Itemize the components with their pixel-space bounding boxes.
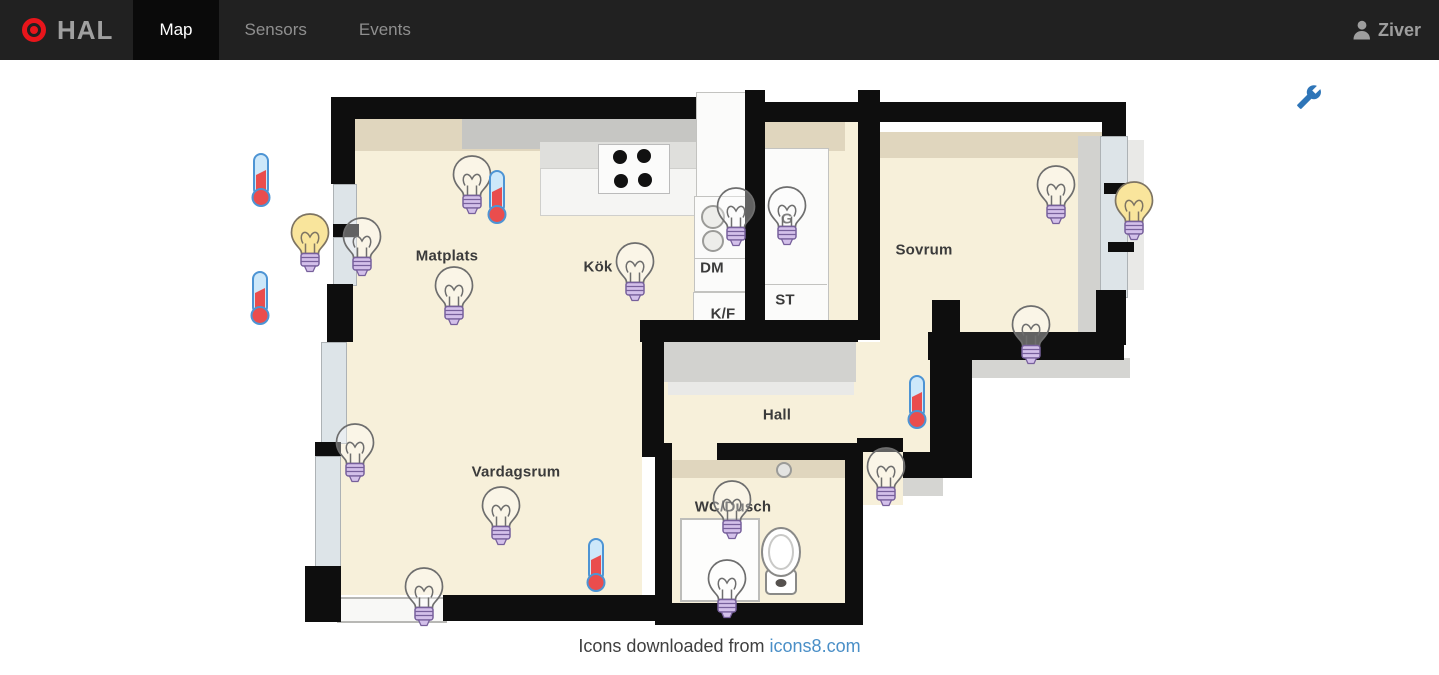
target-icon xyxy=(20,16,48,44)
map-canvas: MatplatsKökSovrumHallVardagsrumWC/DuschD… xyxy=(0,60,1439,675)
wall xyxy=(658,443,672,460)
wall xyxy=(305,566,341,622)
thermometer-sensor[interactable] xyxy=(248,270,272,331)
thermometer-sensor[interactable] xyxy=(249,152,273,213)
wall xyxy=(765,102,1123,122)
toilet xyxy=(758,526,804,600)
wall xyxy=(642,320,664,457)
footer-credit: Icons downloaded from icons8.com xyxy=(0,636,1439,657)
wall xyxy=(1096,290,1126,345)
light-bulb-sensor[interactable] xyxy=(398,564,450,633)
wall xyxy=(1102,102,1126,136)
tab-events[interactable]: Events xyxy=(333,0,437,60)
light-bulb-sensor[interactable] xyxy=(710,184,762,253)
wall xyxy=(327,284,353,342)
app: HAL MapSensorsEvents Ziver xyxy=(0,0,1439,675)
user-menu[interactable]: Ziver xyxy=(1334,0,1439,60)
light-bulb-sensor[interactable] xyxy=(336,214,388,283)
tab-map[interactable]: Map xyxy=(133,0,218,60)
username: Ziver xyxy=(1378,20,1421,41)
light-bulb-sensor[interactable] xyxy=(428,263,480,332)
stove xyxy=(598,144,670,194)
stove-burner xyxy=(613,150,627,164)
wall xyxy=(717,443,857,460)
navbar: HAL MapSensorsEvents Ziver xyxy=(0,0,1439,60)
stove-burner xyxy=(637,149,651,163)
brand-name: HAL xyxy=(57,15,113,46)
icons8-link[interactable]: icons8.com xyxy=(770,636,861,656)
tab-sensors[interactable]: Sensors xyxy=(219,0,333,60)
wall xyxy=(655,443,672,625)
light-bulb-sensor[interactable] xyxy=(1108,178,1160,247)
wall xyxy=(930,332,972,478)
light-bulb-sensor[interactable] xyxy=(706,477,758,546)
wall xyxy=(443,595,657,621)
floorplan: MatplatsKökSovrumHallVardagsrumWC/DuschD… xyxy=(0,60,1439,675)
stove-burner xyxy=(638,173,652,187)
light-bulb-sensor[interactable] xyxy=(860,444,912,513)
dm-cabinet xyxy=(694,258,748,292)
light-bulb-sensor[interactable] xyxy=(701,556,753,625)
wall xyxy=(640,320,858,342)
light-bulb-sensor[interactable] xyxy=(284,210,336,279)
light-bulb-sensor[interactable] xyxy=(475,483,527,552)
light-bulb-sensor[interactable] xyxy=(1030,162,1082,231)
wall xyxy=(331,97,355,184)
light-bulb-sensor[interactable] xyxy=(329,420,381,489)
credit-text: Icons downloaded from xyxy=(578,636,764,656)
thermometer-sensor[interactable] xyxy=(485,169,509,230)
light-bulb-sensor[interactable] xyxy=(1005,302,1057,371)
shower-head xyxy=(776,462,792,478)
wall xyxy=(932,300,960,334)
wall xyxy=(333,97,696,119)
dm-upper-column xyxy=(696,92,747,199)
stove-burner xyxy=(614,174,628,188)
thermometer-sensor[interactable] xyxy=(905,374,929,435)
wall xyxy=(655,603,863,625)
nav-tabs: MapSensorsEvents xyxy=(133,0,436,60)
thermometer-sensor[interactable] xyxy=(584,537,608,598)
light-bulb-sensor[interactable] xyxy=(609,239,661,308)
light-bulb-sensor[interactable] xyxy=(761,183,813,252)
hall-counter xyxy=(664,342,856,382)
wall xyxy=(858,90,880,340)
person-icon xyxy=(1352,20,1371,40)
brand[interactable]: HAL xyxy=(0,0,133,60)
